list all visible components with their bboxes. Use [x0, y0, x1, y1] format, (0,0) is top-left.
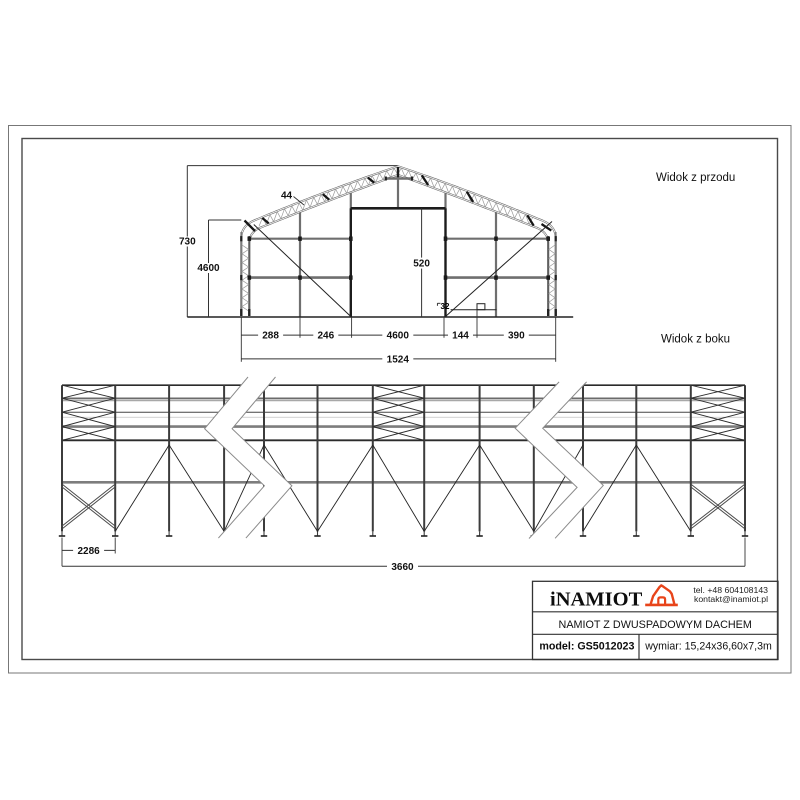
svg-text:4600: 4600 [387, 331, 410, 342]
svg-text:246: 246 [317, 331, 334, 342]
svg-text:144: 144 [452, 331, 469, 342]
svg-text:1524: 1524 [387, 354, 410, 365]
svg-text:model: GS5012023: model: GS5012023 [539, 641, 634, 653]
svg-text:3660: 3660 [391, 562, 414, 573]
svg-text:32: 32 [441, 302, 450, 311]
svg-text:520: 520 [413, 259, 430, 270]
svg-text:wymiar: 15,24x36,60x7,3m: wymiar: 15,24x36,60x7,3m [644, 641, 772, 653]
svg-text:288: 288 [262, 331, 279, 342]
svg-text:iNAMIOT: iNAMIOT [550, 588, 643, 610]
svg-text:390: 390 [508, 331, 525, 342]
svg-text:4600: 4600 [197, 263, 220, 274]
svg-text:kontakt@inamiot.pl: kontakt@inamiot.pl [694, 594, 768, 604]
svg-text:44: 44 [281, 190, 293, 201]
svg-text:Widok z przodu: Widok z przodu [656, 172, 735, 184]
svg-text:730: 730 [179, 237, 196, 248]
svg-text:Widok z boku: Widok z boku [661, 334, 730, 346]
svg-text:2286: 2286 [77, 546, 100, 557]
svg-text:NAMIOT Z DWUSPADOWYM DACHEM: NAMIOT Z DWUSPADOWYM DACHEM [559, 619, 752, 631]
